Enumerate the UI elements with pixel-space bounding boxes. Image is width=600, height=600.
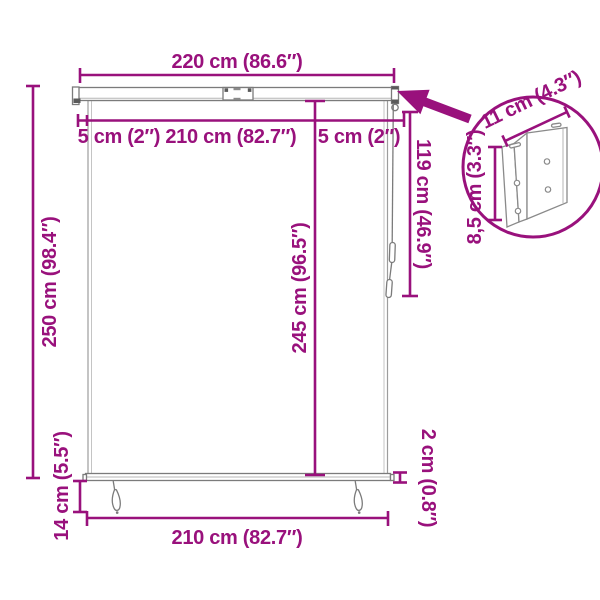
label-bottom-bar-thickness: 2 cm (0.8″) bbox=[418, 429, 438, 528]
screw-hole bbox=[514, 180, 519, 185]
dim-line-total-height bbox=[26, 86, 40, 478]
label-center-drop: 245 cm (96.5″) bbox=[290, 222, 310, 353]
dim-line-bottom-bar bbox=[393, 473, 407, 483]
label-total-width: 220 cm (86.6″) bbox=[171, 52, 302, 72]
dim-line-bottom-width bbox=[87, 511, 388, 526]
right-bracket bbox=[392, 87, 399, 111]
bottom-bar bbox=[83, 474, 394, 481]
label-bottom-clearance: 14 cm (5.5″) bbox=[52, 431, 72, 540]
screw-hole bbox=[515, 208, 520, 213]
roller-blind-drawing bbox=[73, 87, 399, 514]
dim-line-bottom-clearance bbox=[73, 481, 87, 512]
callout-arrow bbox=[397, 90, 472, 123]
label-total-height: 250 cm (98.4″) bbox=[40, 216, 60, 347]
blind-dimension-diagram: 220 cm (86.6″) 5 cm (2″) 210 cm (82.7″) … bbox=[0, 0, 600, 600]
left-bracket bbox=[73, 87, 81, 105]
fabric-panel bbox=[88, 101, 388, 475]
screw-hole bbox=[544, 159, 549, 164]
label-top-margins-fabric-width: 5 cm (2″) 210 cm (82.7″) bbox=[78, 127, 297, 147]
screw-hole bbox=[545, 187, 550, 192]
label-bottom-width: 210 cm (82.7″) bbox=[171, 528, 302, 548]
center-joiner bbox=[223, 88, 253, 101]
dim-line-bracket-height bbox=[488, 147, 502, 220]
label-bracket-height: 8,5 cm (3.3″) bbox=[465, 130, 485, 245]
label-right-drop: 119 cm (46.9″) bbox=[413, 139, 433, 269]
tassel-right bbox=[354, 481, 362, 514]
label-top-right-margin: 5 cm (2″) bbox=[318, 127, 400, 147]
tassel-left bbox=[112, 481, 120, 514]
